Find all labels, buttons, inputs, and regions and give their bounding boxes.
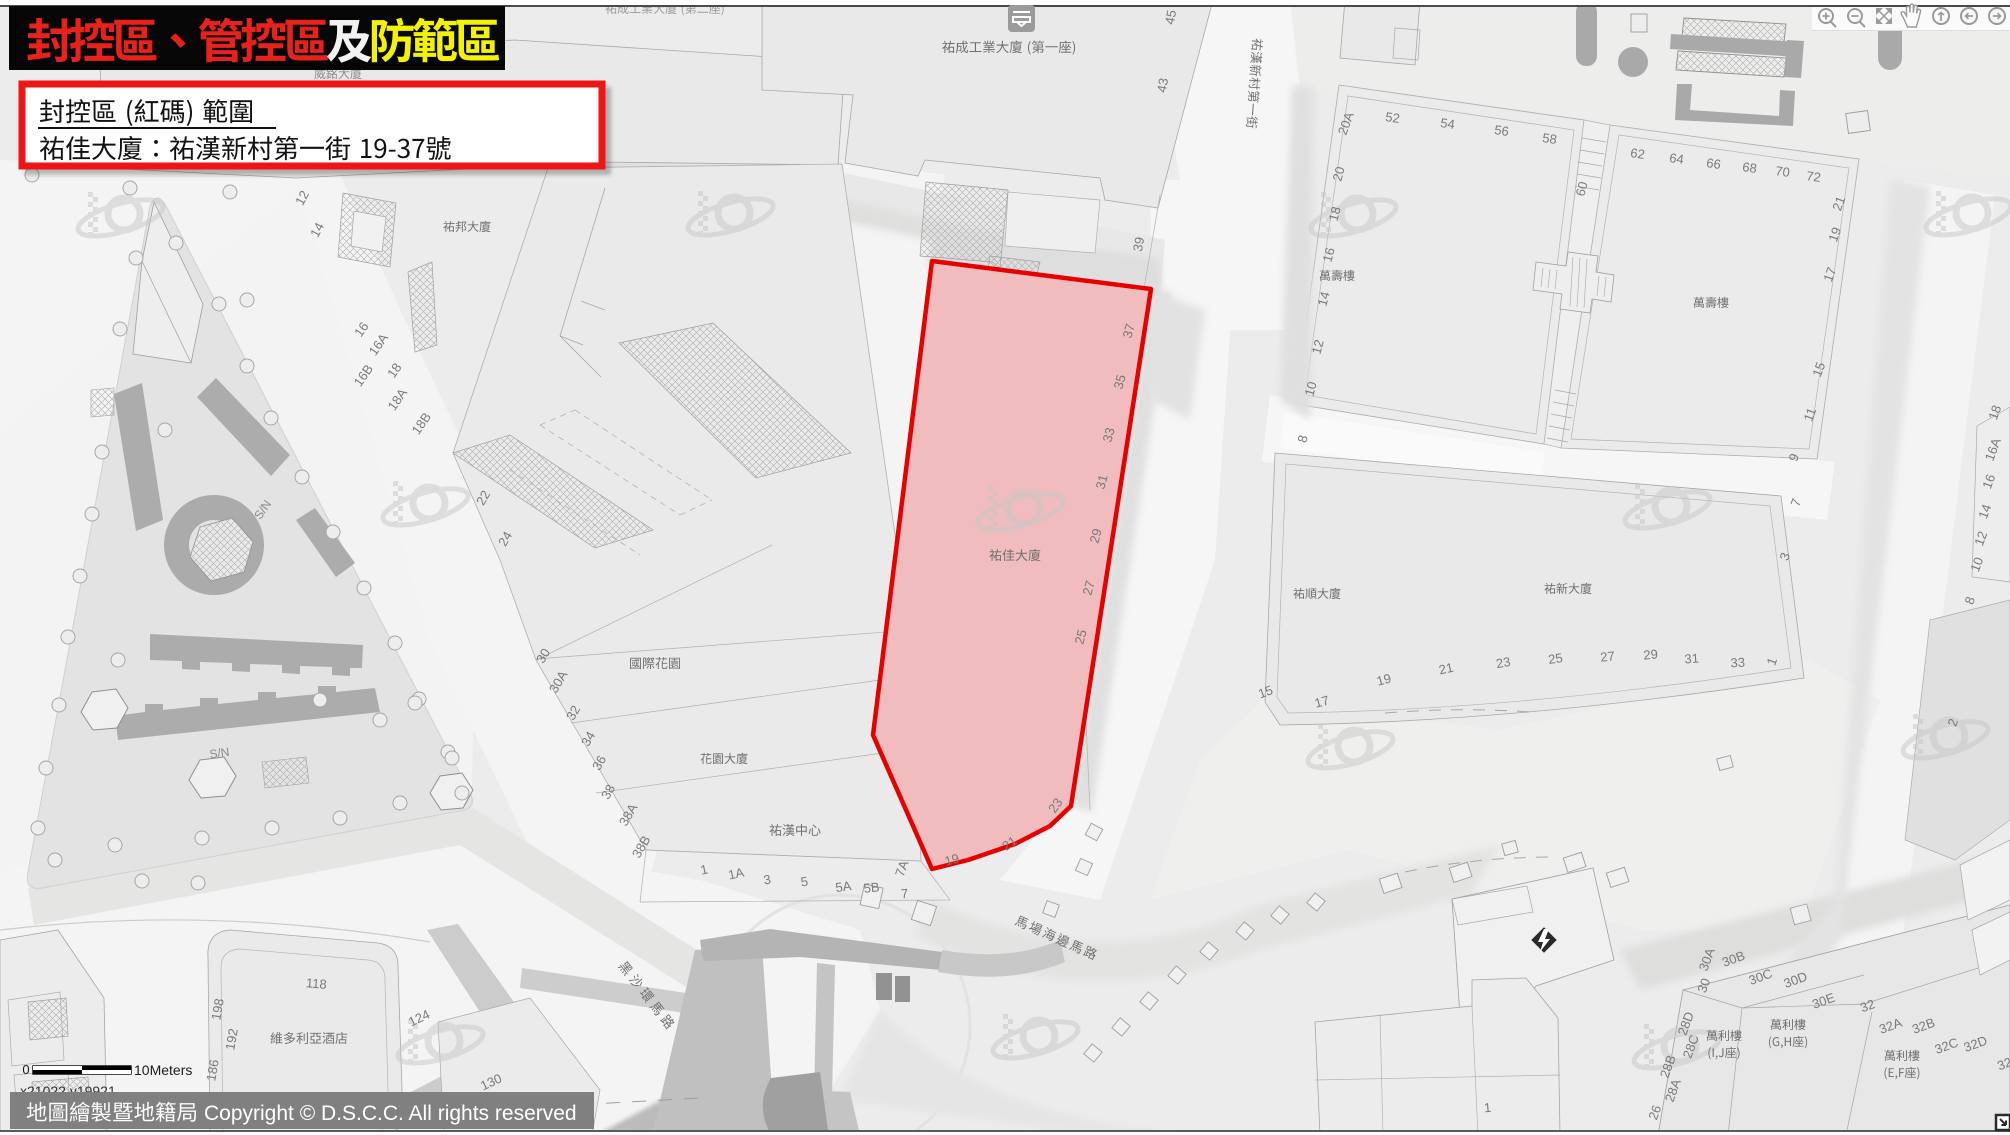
svg-text:45: 45 [1162, 9, 1179, 26]
svg-text:70: 70 [1774, 163, 1790, 180]
svg-text:31: 31 [1684, 651, 1699, 667]
svg-text:43: 43 [1154, 77, 1171, 94]
svg-text:S/N: S/N [209, 745, 231, 762]
svg-text:33: 33 [1730, 655, 1745, 671]
svg-text:0: 0 [22, 1062, 29, 1077]
svg-text:39: 39 [1130, 236, 1147, 253]
svg-text:5B: 5B [863, 879, 880, 896]
svg-text:64: 64 [1668, 150, 1684, 167]
svg-text:21: 21 [1437, 660, 1454, 678]
svg-text:7: 7 [900, 886, 909, 902]
svg-text:56: 56 [1493, 122, 1509, 139]
svg-text:29: 29 [1643, 646, 1659, 662]
svg-text:23: 23 [1495, 654, 1512, 671]
svg-text:72: 72 [1805, 168, 1821, 185]
svg-text:62: 62 [1629, 145, 1645, 162]
svg-text:1: 1 [1483, 1100, 1492, 1116]
svg-text:68: 68 [1741, 159, 1757, 176]
svg-text:5A: 5A [834, 878, 852, 895]
svg-text:54: 54 [1439, 115, 1455, 132]
svg-text:118: 118 [305, 975, 327, 992]
svg-text:25: 25 [1547, 650, 1563, 667]
svg-text:10Meters: 10Meters [134, 1062, 192, 1078]
svg-text:Copyright © D.S.C.C. All right: Copyright © D.S.C.C. All rights reserved [204, 1102, 577, 1125]
svg-text:66: 66 [1705, 155, 1721, 172]
svg-text:52: 52 [1384, 109, 1400, 126]
svg-text:27: 27 [1600, 648, 1616, 664]
svg-text:58: 58 [1541, 130, 1557, 147]
